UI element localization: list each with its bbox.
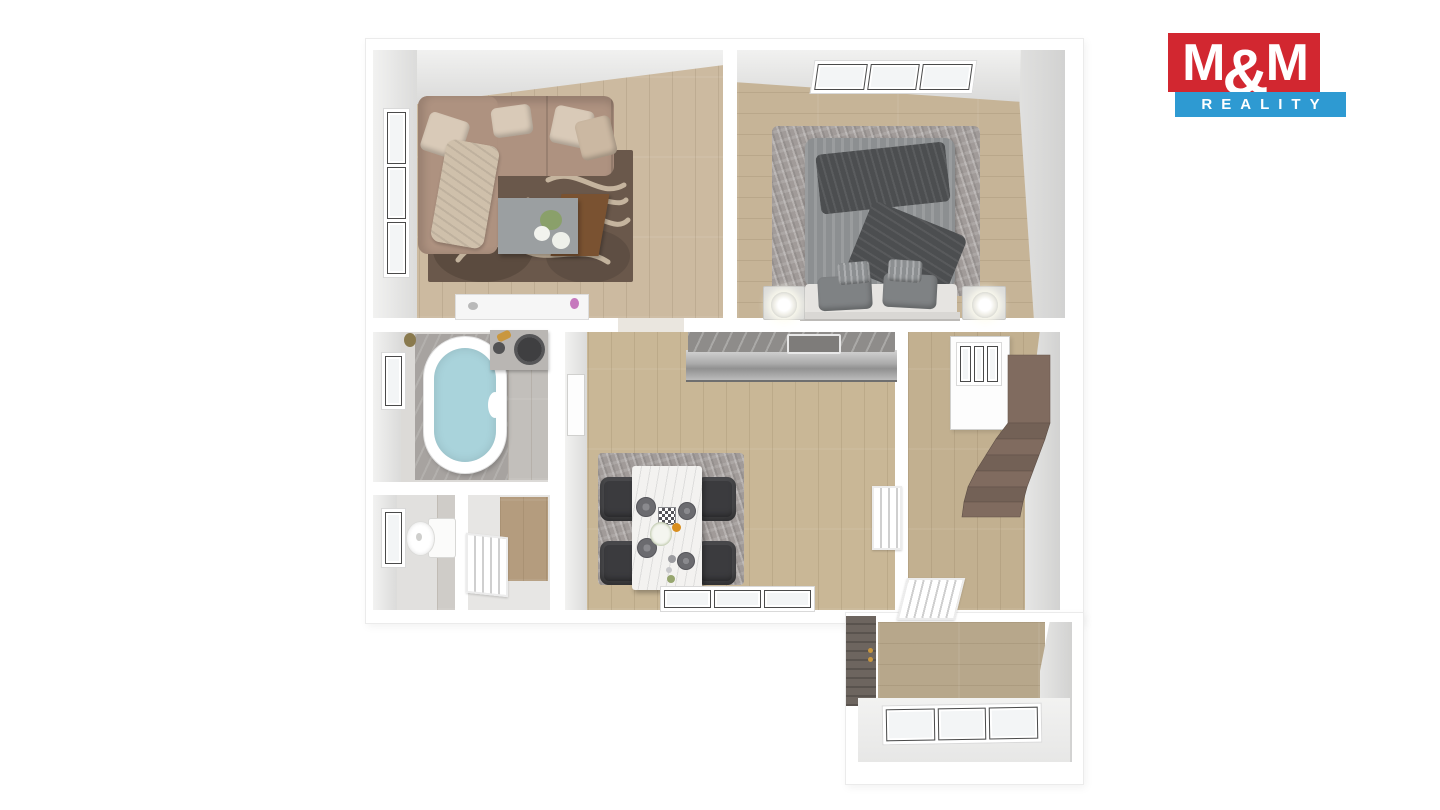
window-pane: [920, 64, 973, 90]
bathroom-plant: [404, 333, 416, 347]
mm-reality-logo-wordmark: REALITY: [1175, 92, 1346, 117]
logo-letter-m: M: [1182, 37, 1222, 89]
living-room-window: [383, 108, 410, 278]
herb-dish: [667, 575, 675, 583]
small-dish: [666, 567, 672, 573]
dining-chair: [696, 541, 736, 585]
bedroom-window: [810, 60, 978, 94]
window-pane: [387, 222, 406, 274]
kitchen-sink: [787, 334, 841, 354]
entry-room-window: [882, 703, 1043, 746]
kitchen-door-threshold: [618, 318, 684, 332]
bathroom-gray-tiles: [508, 360, 548, 480]
bathroom-window: [381, 352, 406, 410]
entry-room-floor: [878, 622, 1045, 698]
window-pane: [886, 708, 935, 741]
bathtub-water: [434, 348, 496, 462]
window-pane: [714, 590, 761, 608]
floorplan-render: M&M REALITY: [0, 0, 1440, 810]
vanity-bottle: [493, 342, 505, 354]
door-handle: [868, 648, 873, 653]
salad-bowl: [650, 522, 672, 546]
fruit: [672, 523, 681, 532]
kitchen-counter-front: [686, 350, 897, 382]
sideboard-flower: [570, 298, 579, 309]
dining-chair: [696, 477, 736, 521]
entry-hall-paneled-door: [466, 533, 508, 597]
bed-cushion: [837, 261, 871, 286]
window-pane: [387, 167, 406, 219]
window-pane: [937, 708, 986, 741]
bathtub-ledge: [488, 392, 502, 418]
window-pane: [764, 590, 811, 608]
window-pane: [989, 707, 1038, 740]
mm-reality-logo-mark: M&M: [1168, 33, 1320, 92]
door-lock: [868, 657, 873, 662]
small-bowl: [668, 555, 676, 563]
toilet-flush-button: [416, 533, 422, 541]
plant-flowers: [534, 226, 550, 241]
vanity-sink: [514, 334, 545, 365]
window-pane: [814, 64, 867, 90]
sofa-pillow: [490, 103, 534, 138]
staircase: [958, 350, 1058, 522]
window-pane: [664, 590, 711, 608]
lamp-left: [771, 292, 797, 318]
plate: [636, 497, 656, 517]
window-pane: [867, 64, 920, 90]
window-pane: [385, 356, 402, 406]
logo-letter-m: M: [1266, 37, 1306, 89]
sideboard-decor: [468, 302, 478, 310]
bed-cushion: [887, 259, 922, 283]
kitchen-radiator: [872, 486, 902, 550]
kitchen-open-door: [567, 374, 585, 436]
kitchen-window: [660, 586, 815, 612]
bed-headboard: [800, 312, 960, 321]
lamp-right: [972, 292, 998, 318]
wc-window: [381, 508, 406, 568]
window-pane: [385, 512, 402, 564]
plant-flowers: [552, 232, 570, 249]
plate: [678, 502, 696, 520]
window-pane: [387, 112, 406, 164]
stair-hall-paneled-door: [897, 578, 965, 620]
plate: [677, 552, 695, 570]
